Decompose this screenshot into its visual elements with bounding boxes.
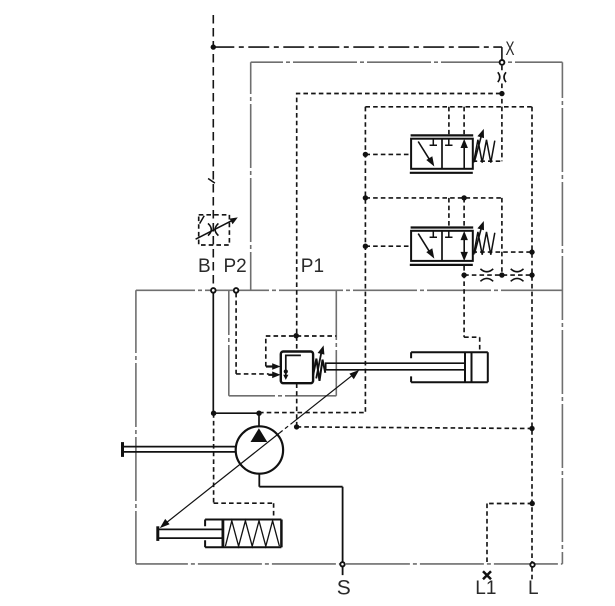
svg-text:P1: P1: [301, 256, 324, 277]
svg-text:S: S: [337, 576, 351, 599]
svg-text:L1: L1: [475, 578, 496, 599]
svg-text:B: B: [198, 256, 211, 277]
svg-text:P2: P2: [224, 256, 247, 277]
svg-text:L: L: [528, 578, 539, 599]
svg-text:X: X: [506, 39, 515, 60]
